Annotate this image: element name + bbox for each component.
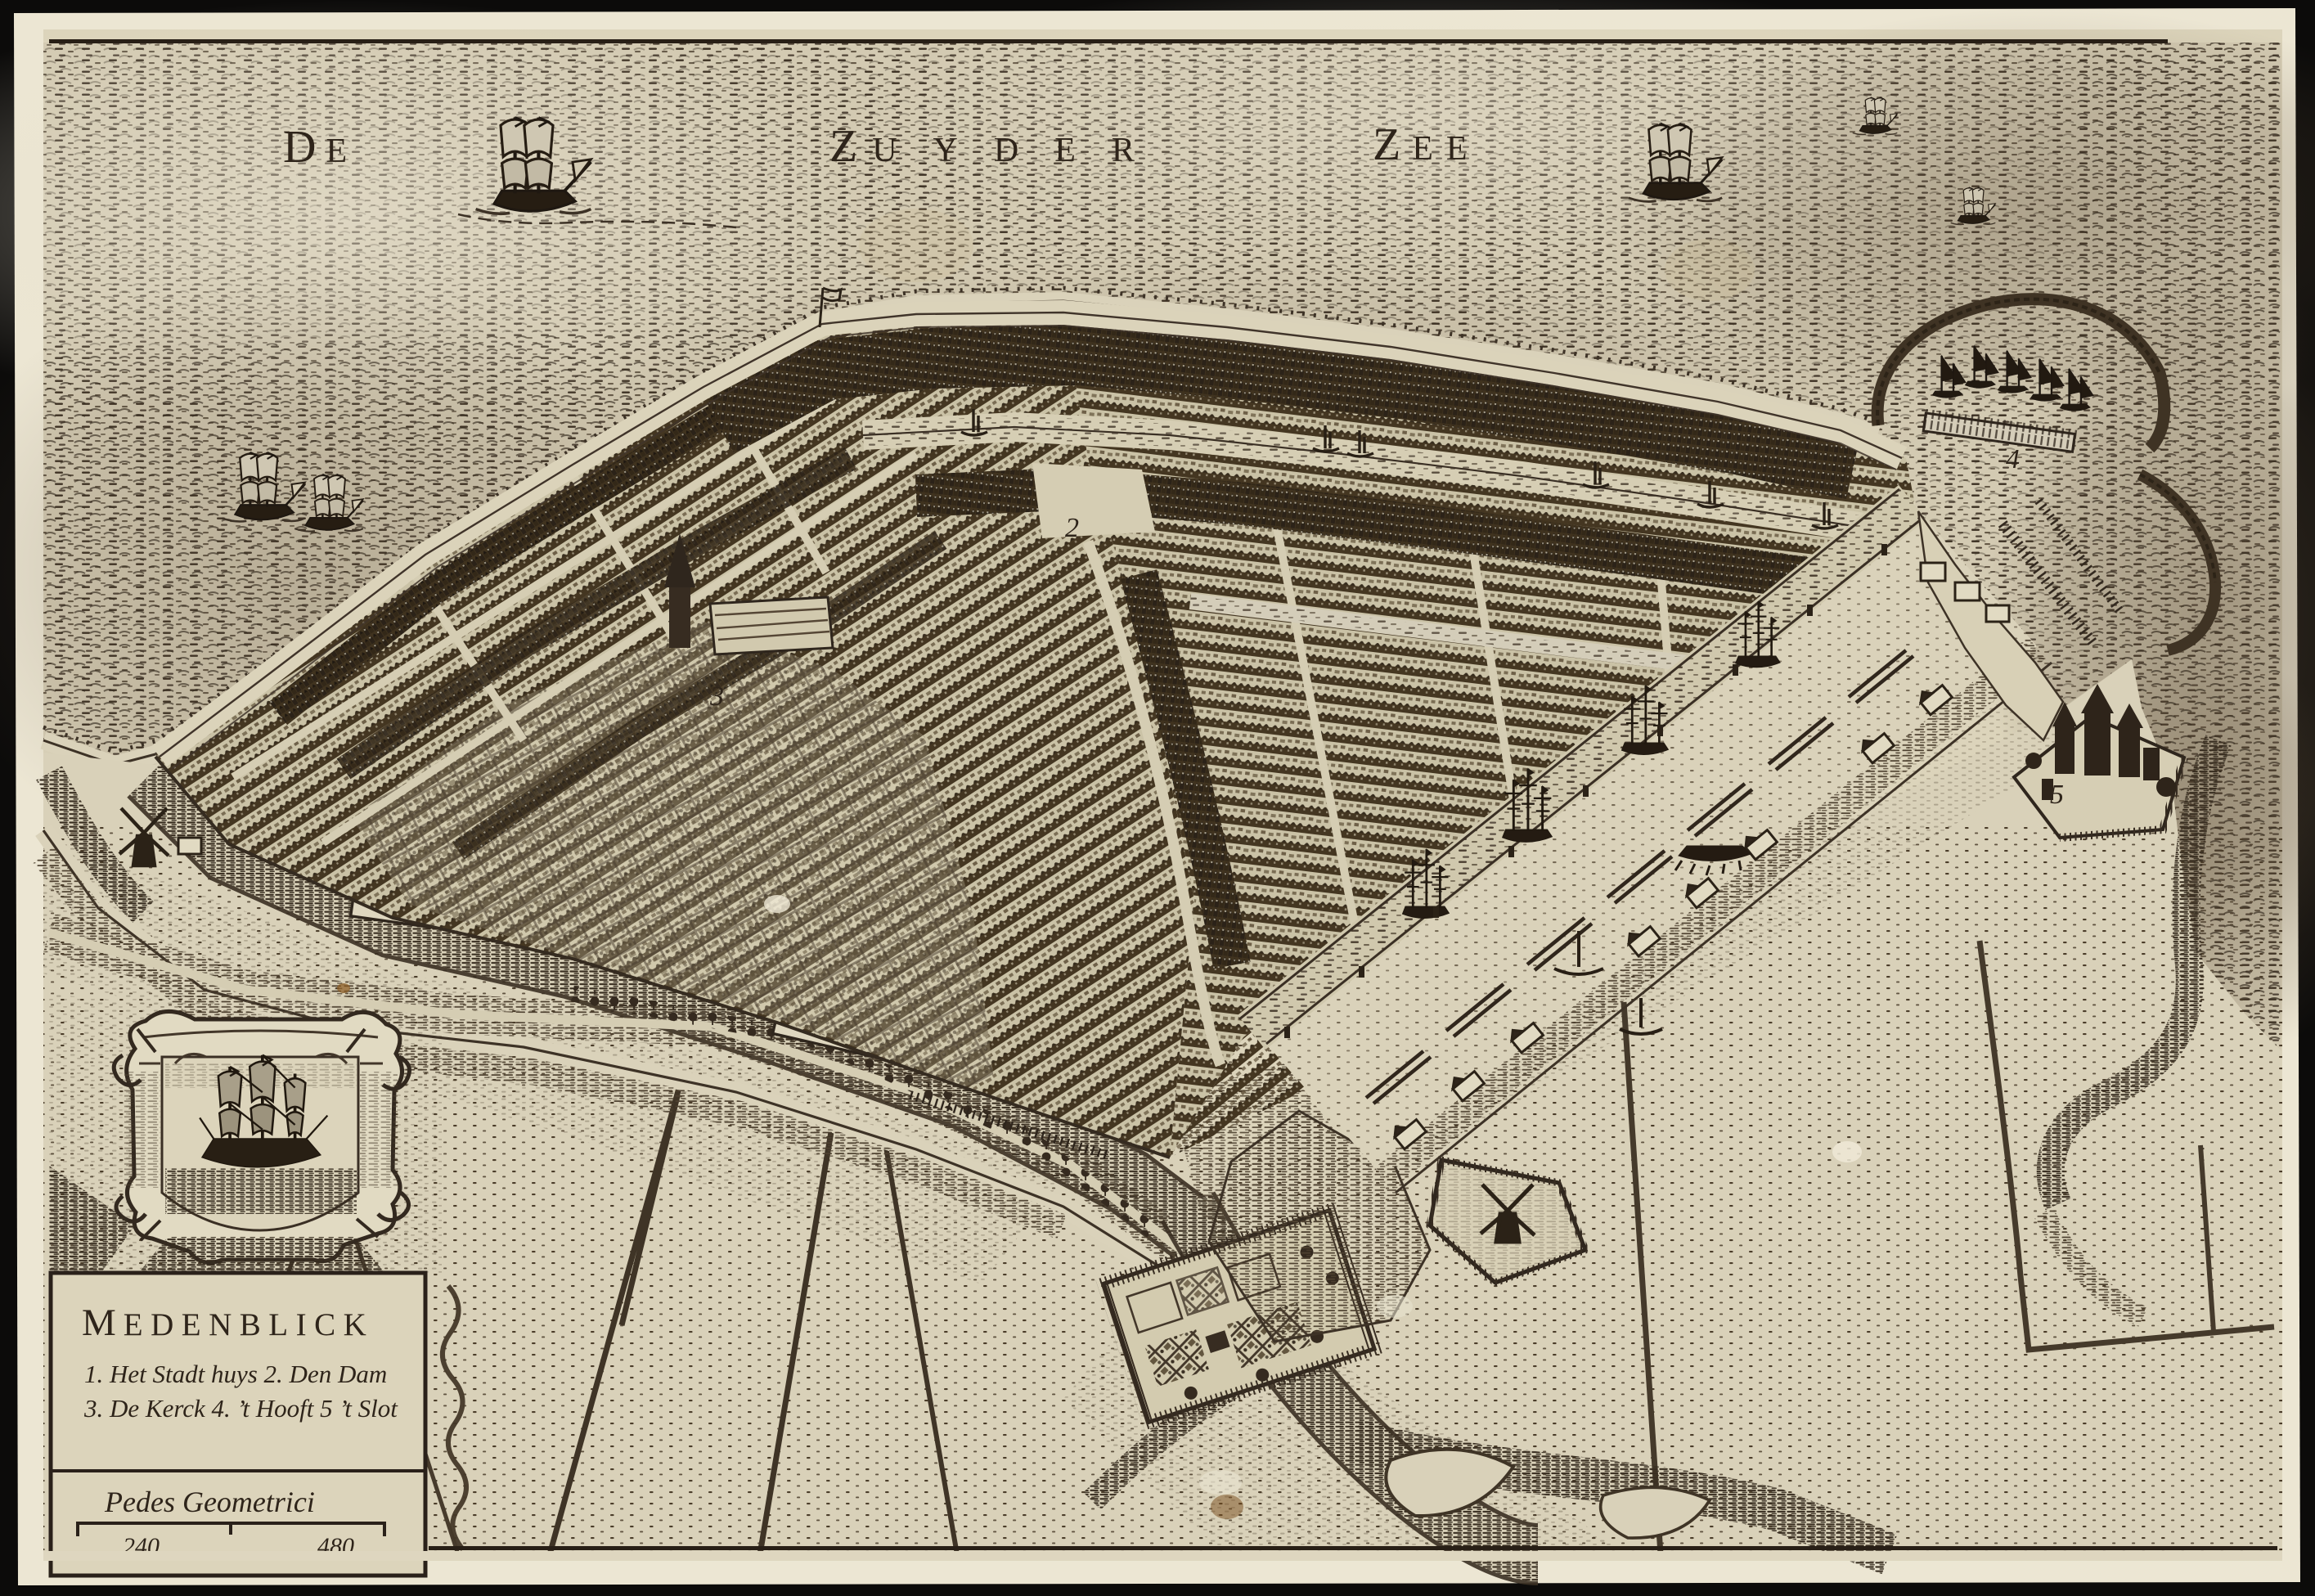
svg-text:MEDENBLICK: MEDENBLICK xyxy=(82,1302,374,1344)
svg-text:Pedes Geometrici: Pedes Geometrici xyxy=(104,1486,315,1518)
svg-text:4: 4 xyxy=(2006,444,2020,474)
svg-text:5: 5 xyxy=(2050,780,2064,810)
svg-text:3: 3 xyxy=(709,681,724,712)
svg-text:3. De Kerck 4. ’t Hooft 5 ’t: 3. De Kerck 4. ’t Hooft 5 ’t Slot xyxy=(83,1394,398,1423)
svg-text:1. Het Stadt huys 2. Den Dam: 1. Het Stadt huys 2. Den Dam xyxy=(84,1360,387,1388)
svg-text:2: 2 xyxy=(1065,513,1079,543)
